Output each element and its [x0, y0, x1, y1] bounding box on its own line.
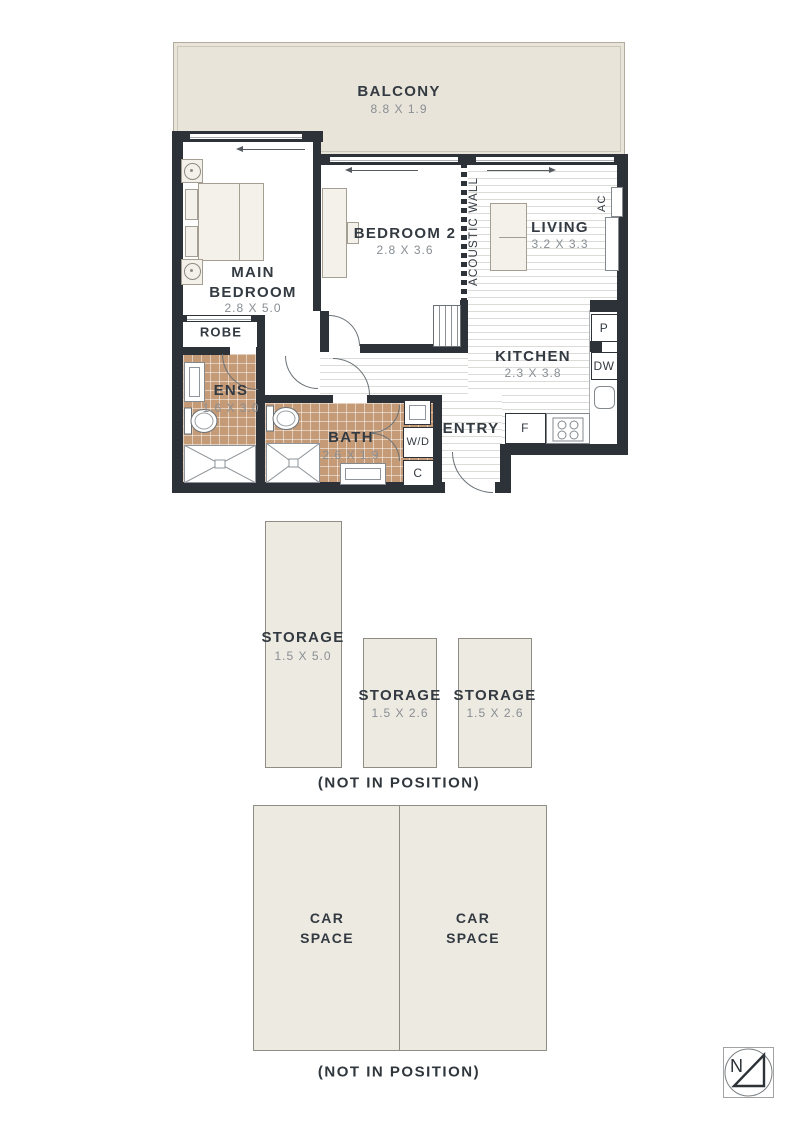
storage-2-dims: 1.5 X 2.6: [371, 706, 428, 720]
laundry-tub: [404, 400, 431, 425]
car-space-2-label: CAR SPACE: [438, 908, 508, 948]
living-sofa: [490, 203, 527, 271]
fridge-label: F: [521, 421, 529, 435]
bedroom2-label: BEDROOM 2: [354, 224, 457, 244]
entry-door-arc: [452, 452, 493, 493]
ac-unit: [611, 187, 623, 217]
window-main-bedroom: [190, 132, 302, 141]
acoustic-wall-dashed: [461, 163, 467, 303]
bedroom2-wardrobe: [433, 305, 461, 347]
cooktop: [546, 413, 590, 444]
pantry-label: P: [600, 321, 609, 335]
balcony-label: BALCONY: [357, 82, 440, 102]
main-bedroom-door-arc: [285, 356, 318, 389]
ac-label: AC: [596, 188, 609, 218]
wall-pantry-stub-top: [590, 300, 617, 312]
kitchen-sink: [594, 386, 615, 409]
ens-shower: [184, 445, 256, 483]
main-bed-pillow: [185, 226, 198, 257]
ens-vanity: [184, 362, 205, 402]
slide-arrow-right-icon: [487, 170, 549, 171]
slide-arrow-left-icon: [243, 149, 305, 150]
wall-bottom-kitchen: [500, 444, 628, 455]
storage-2-label: STORAGE: [358, 686, 441, 706]
entry-label: ENTRY: [443, 419, 500, 439]
cupboard-label: C: [413, 466, 422, 480]
robe-sliding-doors: [187, 315, 251, 322]
main-bedroom-dims: 2.8 X 5.0: [224, 301, 281, 315]
bath-toilet: [266, 405, 302, 432]
window-living: [476, 155, 614, 164]
bath-vanity: [340, 463, 386, 485]
ens-label: ENS: [214, 381, 249, 401]
slide-arrow-left-icon: [352, 170, 418, 171]
kitchen-label: KITCHEN: [495, 347, 571, 367]
north-letter: N: [730, 1056, 743, 1076]
dishwasher-label: DW: [594, 359, 615, 373]
robe-label: ROBE: [200, 325, 242, 340]
wall-acoustic-solid: [460, 300, 468, 352]
north-compass-icon: N: [723, 1047, 774, 1098]
storage-caption: (NOT IN POSITION): [318, 775, 480, 792]
ens-dims: 1.6 X 3.0: [202, 401, 259, 415]
window-bedroom2: [330, 155, 458, 164]
kitchen-dims: 2.3 X 3.8: [504, 366, 561, 380]
shower-icon: [266, 443, 320, 483]
floorplan-page: BALCONY 8.8 X 1.9 MAIN BEDROOM 2.8 X 5.0…: [0, 0, 800, 1131]
bath-shower: [266, 443, 320, 483]
wall-entry-divider: [433, 395, 442, 493]
acoustic-wall-label: ACOUSTIC WALL: [468, 158, 483, 304]
north-compass: N: [723, 1047, 774, 1098]
balcony-dims: 8.8 X 1.9: [370, 102, 427, 116]
storage-3-label: STORAGE: [453, 686, 536, 706]
bedroom2-bed: [322, 188, 347, 278]
bath-dims: 2.6 X 1.9: [322, 448, 379, 462]
storage-1-dims: 1.5 X 5.0: [274, 649, 331, 663]
wall-pantry-stub-bottom: [590, 341, 602, 352]
nightstand: [181, 159, 203, 183]
wall-bedroom2-door-stub: [320, 311, 329, 352]
bath-label: BATH: [328, 428, 374, 448]
main-bed: [198, 183, 264, 261]
washer-dryer-label: W/D: [407, 436, 430, 448]
storage-1-label: STORAGE: [261, 628, 344, 648]
car-space-divider: [399, 805, 400, 1051]
living-dims: 3.2 X 3.3: [531, 237, 588, 251]
tv-unit: [605, 217, 619, 271]
main-bedroom-label: MAIN BEDROOM: [188, 263, 318, 303]
wall-left: [172, 131, 183, 493]
toilet-icon: [266, 405, 302, 432]
wall-bottom-entry-stub: [495, 482, 511, 493]
car-space-1-label: CAR SPACE: [292, 908, 362, 948]
shower-icon: [184, 445, 256, 483]
lamp-icon: [184, 163, 201, 180]
cooktop-burners-icon: [547, 414, 591, 445]
wall-bath-top-left: [265, 395, 333, 403]
storage-3-dims: 1.5 X 2.6: [466, 706, 523, 720]
bedroom2-door-arc: [329, 315, 360, 346]
parking-caption: (NOT IN POSITION): [318, 1064, 480, 1081]
bedroom2-dims: 2.8 X 3.6: [376, 243, 433, 257]
living-label: LIVING: [531, 218, 589, 238]
main-bed-pillow: [185, 189, 198, 220]
